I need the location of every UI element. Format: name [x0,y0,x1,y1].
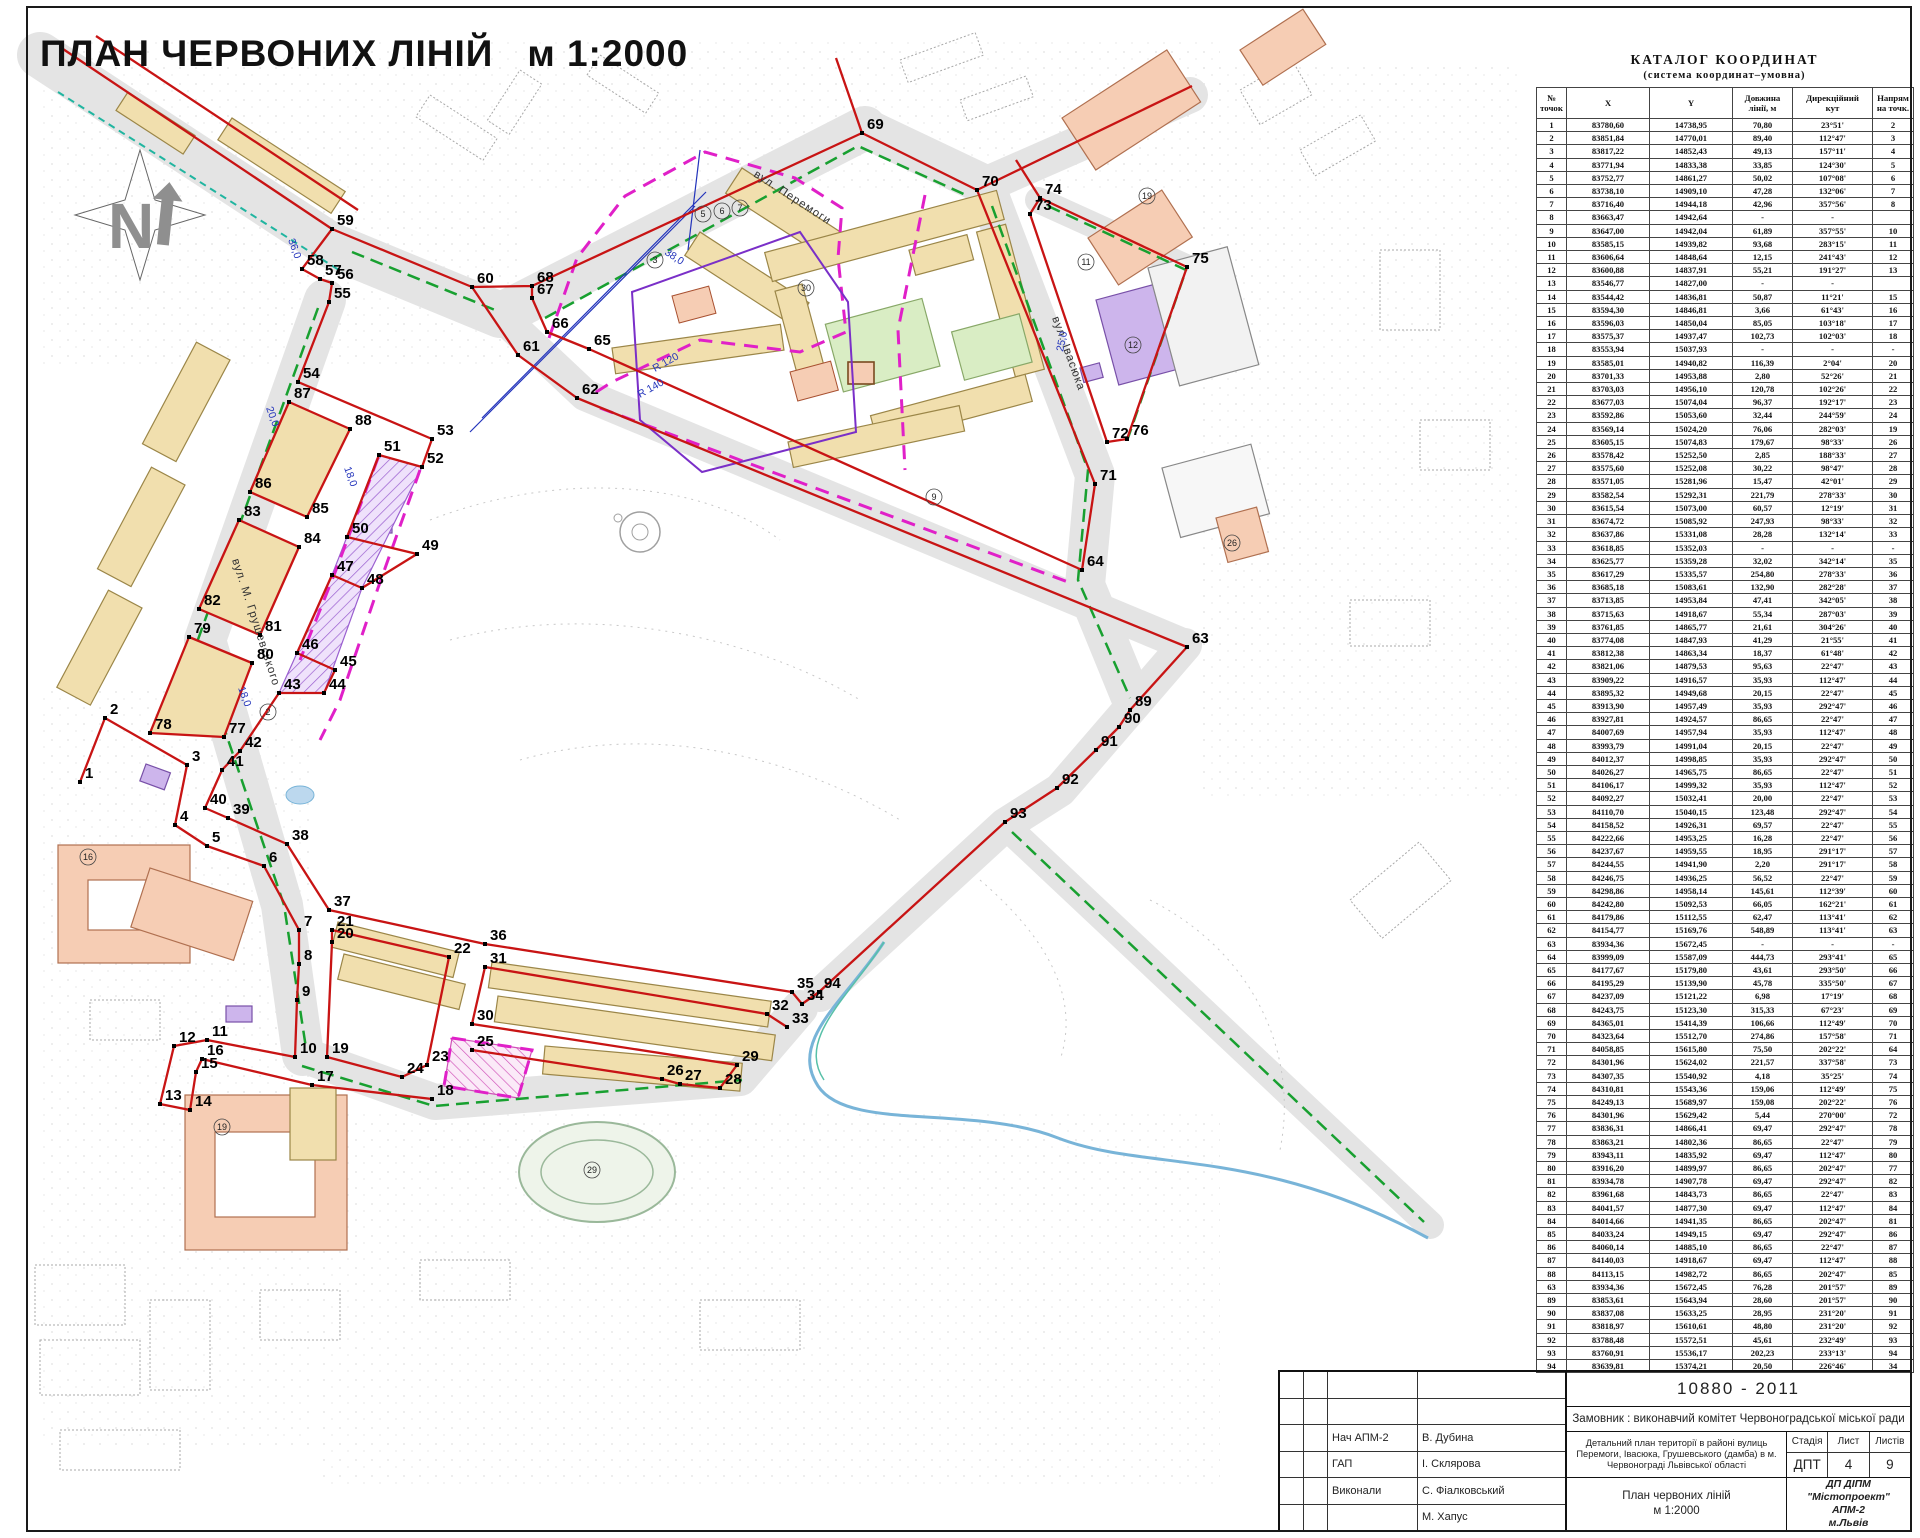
svg-text:55: 55 [334,285,351,302]
svg-text:54: 54 [303,365,320,382]
table-row: 4984012,3714998,8535,93292°47'50 [1537,752,1914,765]
table-row: 7684301,9615629,425,44270°00'72 [1537,1109,1914,1122]
svg-text:52: 52 [427,450,444,467]
table-row: 1683596,0314850,0485,05103°18'17 [1537,317,1914,330]
svg-text:19: 19 [1142,191,1152,201]
page-title: ПЛАН ЧЕРВОНИХ ЛІНІЙм 1:2000 [40,33,688,75]
svg-text:68: 68 [537,269,554,286]
svg-text:64: 64 [1087,553,1104,570]
title-block: Нач АПМ-2В. Дубина ГАПІ. Склярова Викона… [1278,1370,1912,1532]
svg-text:59: 59 [337,212,354,229]
svg-text:18: 18 [437,1082,454,1099]
stage-table: Стадія Лист Листів ДПТ 4 9 [1787,1432,1910,1477]
building-number: 11 [1078,254,1094,270]
table-row: 6684195,2915139,9045,78335°50'67 [1537,977,1914,990]
svg-text:28: 28 [725,1071,742,1088]
catalog-title: КАТАЛОГ КООРДИНАТ [1536,52,1913,68]
table-row: 1483544,4214836,8150,8711°21'15 [1537,290,1914,303]
table-row: 6984365,0115414,39106,66112°49'70 [1537,1016,1914,1029]
svg-text:83: 83 [244,503,261,520]
svg-text:25: 25 [477,1033,494,1050]
svg-text:82: 82 [204,592,221,609]
organization-city: м.Львів [1829,1517,1869,1530]
svg-text:32: 32 [772,997,789,1014]
svg-text:87: 87 [294,385,311,402]
catalog-table: № точокXYДовжина лінії, мДирекційний кут… [1536,87,1914,1373]
table-row: 3683685,1815083,61132,90282°28'37 [1537,581,1914,594]
table-row: 1183606,6414848,6412,15241°43'12 [1537,251,1914,264]
table-row: 2683578,4215252,502,85188°33'27 [1537,449,1914,462]
table-row: 983647,0014942,0461,89357°55'10 [1537,224,1914,237]
table-row: 7883863,2114802,3686,6522°47'79 [1537,1135,1914,1148]
survey-point: 36 [483,927,507,946]
table-row: 5484158,5214926,3169,5722°47'55 [1537,818,1914,831]
survey-point: 84 [297,530,321,549]
svg-text:65: 65 [594,332,611,349]
table-row: 1083585,1514939,8293,68283°15'11 [1537,237,1914,250]
svg-text:19: 19 [217,1122,227,1132]
table-row: 6884243,7515123,30315,3367°23'69 [1537,1003,1914,1016]
svg-text:70: 70 [982,173,999,190]
table-row: 5584222,6614953,2516,2822°47'56 [1537,831,1914,844]
table-row: 8384041,5714877,3069,47112°47'84 [1537,1201,1914,1214]
svg-text:26: 26 [667,1062,684,1079]
svg-text:5: 5 [700,209,705,219]
svg-text:6: 6 [269,849,277,866]
svg-text:44: 44 [329,676,346,693]
table-row: 8884113,1514982,7286,65202°47'85 [1537,1267,1914,1280]
table-row: 7084323,6415512,70274,86157°58'71 [1537,1030,1914,1043]
survey-point: 65 [587,332,611,351]
svg-text:37: 37 [334,893,351,910]
table-row: 9383760,9115536,17202,23233°13'94 [1537,1346,1914,1359]
svg-text:46: 46 [302,636,319,653]
table-row: 6184179,8615112,5562,47113°41'62 [1537,911,1914,924]
table-row: 4083774,0814847,9341,2921°55'41 [1537,633,1914,646]
signature-role [1328,1505,1418,1531]
table-row: 5084026,2714965,7586,6522°47'51 [1537,765,1914,778]
svg-text:38: 38 [292,827,309,844]
signature-role: Нач АПМ-2 [1328,1425,1418,1451]
svg-text:43: 43 [284,676,301,693]
table-row: 1883553,9415037,93--- [1537,343,1914,356]
svg-text:22: 22 [454,940,471,957]
svg-text:51: 51 [384,438,401,455]
table-row: 9283788,4815572,5145,61232°49'93 [1537,1333,1914,1346]
svg-text:21: 21 [337,913,354,930]
table-row: 4883993,7914991,0420,1522°47'49 [1537,739,1914,752]
svg-text:63: 63 [1192,630,1209,647]
table-row: 183780,6014738,9570,8023°51'2 [1537,119,1914,132]
table-row: 1283600,8814837,9155,21191°27'13 [1537,264,1914,277]
table-row: 3983761,8514865,7721,61304°26'40 [1537,620,1914,633]
svg-text:16: 16 [207,1042,224,1059]
table-row: 8183934,7814907,7869,47292°47'82 [1537,1175,1914,1188]
svg-text:41: 41 [227,753,244,770]
survey-point: 31 [483,950,507,969]
sheets-label: Листів [1870,1432,1910,1452]
svg-text:69: 69 [867,116,884,133]
svg-text:90: 90 [1124,710,1141,727]
object-description: Детальний план території в районі вулиць… [1567,1432,1787,1477]
stage-label: Стадія [1787,1432,1828,1452]
table-row: 6383934,3615672,45--- [1537,937,1914,950]
organization-name: ДП ДІПМ "Містопроект" [1787,1478,1910,1504]
table-row: 2483569,1415024,2076,06282°03'19 [1537,422,1914,435]
svg-text:75: 75 [1192,250,1209,267]
sheet-value: 4 [1828,1453,1869,1477]
table-row: 5784244,5514941,902,20291°17'58 [1537,858,1914,871]
svg-text:53: 53 [437,422,454,439]
table-row: 5984298,8614958,14145,61112°39'60 [1537,884,1914,897]
svg-text:74: 74 [1045,181,1062,198]
table-row: 8784140,0314918,6769,47112°47'88 [1537,1254,1914,1267]
table-row: 3583617,2915335,57254,80278°33'36 [1537,567,1914,580]
svg-text:77: 77 [229,720,246,737]
table-row: 483771,9414833,3833,85124°30'5 [1537,158,1914,171]
catalog-column-header: X [1567,88,1650,119]
table-row: 6383934,3615672,4576,28201°57'89 [1537,1280,1914,1293]
table-row: 2883571,0515281,9615,4742°01'29 [1537,475,1914,488]
svg-text:31: 31 [490,950,507,967]
svg-text:12: 12 [1128,340,1138,350]
table-row: 9183818,9715610,6148,80231°20'92 [1537,1320,1914,1333]
catalog-subtitle: (система координат–умовна) [1536,70,1913,81]
table-row: 1383546,7714827,00-- [1537,277,1914,290]
playground-shed [672,286,716,323]
svg-text:2: 2 [110,701,118,718]
svg-text:62: 62 [582,381,599,398]
table-row: 5884246,7514936,2556,5222°47'59 [1537,871,1914,884]
svg-text:57: 57 [325,262,342,279]
document-title-cell: План червоних ліній м 1:2000 [1567,1478,1787,1530]
svg-text:80: 80 [257,646,274,663]
svg-text:1: 1 [85,765,93,782]
svg-text:66: 66 [552,315,569,332]
catalog-column-header: Дирекційний кут [1793,88,1873,119]
table-row: 6084242,8015092,5366,05162°21'61 [1537,897,1914,910]
table-row: 9083837,0815633,2528,95231°20'91 [1537,1307,1914,1320]
svg-text:8: 8 [304,947,312,964]
svg-text:13: 13 [165,1087,182,1104]
svg-text:86: 86 [255,475,272,492]
survey-point: 50 [345,520,369,539]
table-row: 5284092,2715032,4120,0022°47'53 [1537,792,1914,805]
svg-text:76: 76 [1132,422,1149,439]
table-row: 5384110,7015040,15123,48292°47'54 [1537,805,1914,818]
table-row: 8283961,6814843,7386,6522°47'83 [1537,1188,1914,1201]
table-row: 6784237,0915121,226,9817°19'68 [1537,990,1914,1003]
table-row: 8484014,6614941,3586,65202°47'81 [1537,1214,1914,1227]
signature-name: І. Склярова [1418,1452,1565,1478]
project-number: 10880 - 2011 [1567,1372,1910,1407]
coordinate-catalog: КАТАЛОГ КООРДИНАТ (система координат–умо… [1536,52,1913,1373]
plan-sheet: N вул. Перемогивул. Івасюкавул. М. Груше… [0,0,1920,1538]
catalog-column-header: Y [1650,88,1733,119]
svg-text:61: 61 [523,338,540,355]
svg-text:73: 73 [1035,197,1052,214]
signature-name: В. Дубина [1418,1425,1565,1451]
stage-value: ДПТ [1787,1453,1828,1477]
survey-point: 21 [330,913,354,932]
svg-text:16: 16 [83,852,93,862]
svg-text:39: 39 [233,801,250,818]
signature-role: ГАП [1328,1452,1418,1478]
survey-point: 66 [545,315,569,334]
document-scale: м 1:2000 [1653,1504,1699,1519]
table-row: 8083916,2014899,9786,65202°47'77 [1537,1162,1914,1175]
svg-text:71: 71 [1100,467,1117,484]
table-row: 7783836,3114866,4169,47292°47'78 [1537,1122,1914,1135]
survey-point: 47 [330,558,354,577]
table-row: 4183812,3814863,3418,3761°48'42 [1537,647,1914,660]
survey-point: 72 [1105,425,1129,444]
svg-text:10: 10 [300,1040,317,1057]
svg-text:36: 36 [490,927,507,944]
svg-text:7: 7 [304,913,312,930]
survey-point: 80 [250,646,274,665]
table-row: 3283637,8615331,0828,28132°14'33 [1537,528,1914,541]
svg-text:92: 92 [1062,771,1079,788]
svg-text:33: 33 [792,1010,809,1027]
svg-text:85: 85 [312,500,329,517]
svg-text:9: 9 [302,983,310,1000]
table-row: 1583594,3014846,813,6661°43'16 [1537,303,1914,316]
svg-text:42: 42 [245,734,262,751]
dimension-label: 18,0 [341,465,359,488]
svg-text:81: 81 [265,618,282,635]
catalog-column-header: № точок [1537,88,1567,119]
organization-dept: АПМ-2 [1832,1504,1865,1517]
table-row: 3783713,8514953,8447,41342°05'38 [1537,594,1914,607]
table-row: 283851,8414770,0189,40112°47'3 [1537,132,1914,145]
svg-text:47: 47 [337,558,354,575]
svg-text:26: 26 [1227,538,1237,548]
svg-text:23: 23 [432,1048,449,1065]
svg-text:58: 58 [307,252,324,269]
svg-text:12: 12 [179,1029,196,1046]
svg-text:60: 60 [477,270,494,287]
svg-text:94: 94 [824,975,841,992]
svg-text:78: 78 [155,716,172,733]
svg-text:88: 88 [355,412,372,429]
table-row: 3083615,5415073,0060,5712°19'31 [1537,501,1914,514]
signature-name: С. Фіалковський [1418,1478,1565,1504]
table-row: 7484310,8115543,36159,06112°49'75 [1537,1082,1914,1095]
table-row: 2783575,6015252,0830,2298°47'28 [1537,462,1914,475]
table-row: 7184058,8515615,8075,50202°22'64 [1537,1043,1914,1056]
table-row: 4283821,0614879,5395,6322°47'43 [1537,660,1914,673]
survey-point: 46 [295,636,319,655]
table-row: 2983582,5415292,31221,79278°33'30 [1537,488,1914,501]
svg-text:89: 89 [1135,693,1152,710]
document-title: План червоних ліній [1622,1489,1730,1504]
table-row: 4383909,2214916,5735,93112°47'44 [1537,673,1914,686]
table-row: 7983943,1114835,9269,47112°47'80 [1537,1148,1914,1161]
table-row: 4784007,6914957,9435,93112°47'48 [1537,726,1914,739]
table-row: 1783575,3714937,47102,73102°03'18 [1537,330,1914,343]
table-row: 3383618,8515352,03--- [1537,541,1914,554]
svg-text:2: 2 [265,707,270,717]
survey-point: 88 [348,412,372,431]
svg-text:29: 29 [587,1165,597,1175]
survey-point: 37 [327,893,351,912]
table-row: 6584177,6715179,8043,61293°50'66 [1537,964,1914,977]
svg-text:11: 11 [1081,257,1090,267]
table-row: 4483895,3214949,6820,1522°47'45 [1537,686,1914,699]
svg-text:9: 9 [931,492,936,502]
organization-cell: ДП ДІПМ "Містопроект" АПМ-2 м.Львів [1787,1478,1910,1530]
svg-text:91: 91 [1101,733,1118,750]
table-row: 1983585,0114940,82116,392°04'20 [1537,356,1914,369]
svg-text:14: 14 [195,1093,212,1110]
table-row: 7584249,1315689,97159,08202°22'76 [1537,1096,1914,1109]
catalog-column-header: Напрям на точк. [1873,88,1914,119]
table-row: 2083701,3314953,882,8052°26'21 [1537,369,1914,382]
table-row: 8584033,2414949,1569,47292°47'86 [1537,1228,1914,1241]
title-scale: м 1:2000 [527,33,688,74]
catalog-column-header: Довжина лінії, м [1733,88,1793,119]
client-line: Замовник : виконавчий комітет Червоногра… [1567,1407,1910,1431]
signature-role: Виконали [1328,1478,1418,1504]
svg-text:45: 45 [340,653,357,670]
table-row: 2183703,0314956,10120,78102°26'22 [1537,383,1914,396]
svg-text:79: 79 [194,620,211,637]
table-row: 2583605,1515074,83179,6798°33'26 [1537,435,1914,448]
dimension-label: R 140 [636,376,666,400]
signature-name: М. Хапус [1418,1505,1565,1531]
svg-text:17: 17 [317,1068,334,1085]
svg-text:7: 7 [737,203,742,213]
survey-point: 49 [415,537,439,556]
table-row: 4683927,8114924,5786,6522°47'47 [1537,713,1914,726]
table-row: 6483999,0915587,09444,73293°41'65 [1537,950,1914,963]
svg-text:11: 11 [212,1023,228,1040]
table-row: 3183674,7215085,92247,9398°33'32 [1537,515,1914,528]
svg-text:4: 4 [180,808,189,825]
svg-text:50: 50 [352,520,369,537]
table-row: 5684237,6714959,5518,95291°17'57 [1537,845,1914,858]
table-row: 7384307,3515540,924,1835°25'74 [1537,1069,1914,1082]
svg-text:93: 93 [1010,805,1027,822]
table-row: 8684060,1414885,1086,6522°47'87 [1537,1241,1914,1254]
title-text: ПЛАН ЧЕРВОНИХ ЛІНІЙ [40,33,493,74]
svg-text:84: 84 [304,530,321,547]
table-row: 383817,2214852,4349,13157°11'4 [1537,145,1914,158]
signatures-block: Нач АПМ-2В. Дубина ГАПІ. Склярова Викона… [1280,1372,1567,1530]
table-row: 783716,4014944,1842,96357°56'8 [1537,198,1914,211]
svg-text:30: 30 [477,1007,494,1024]
svg-text:35: 35 [797,975,814,992]
sheet-label: Лист [1828,1432,1869,1452]
svg-text:5: 5 [212,829,220,846]
table-row: 4583913,9014957,4935,93292°47'46 [1537,699,1914,712]
table-row: 683738,1014909,1047,28132°06'7 [1537,185,1914,198]
fountain [614,512,660,552]
survey-point: 53 [430,422,454,441]
table-row: 2383592,8615053,6032,44244°59'24 [1537,409,1914,422]
table-row: 6284154,7715169,76548,89113°41'63 [1537,924,1914,937]
sheets-value: 9 [1870,1453,1910,1477]
table-row: 7284301,9615624,02221,57337°58'73 [1537,1056,1914,1069]
svg-text:30: 30 [801,283,811,293]
svg-text:24: 24 [407,1060,424,1077]
svg-text:6: 6 [719,206,724,216]
table-row: 3483625,7715359,2832,02342°14'35 [1537,554,1914,567]
catalog-header-row: № точокXYДовжина лінії, мДирекційний кут… [1537,88,1914,119]
svg-text:19: 19 [332,1040,349,1057]
survey-point: 51 [377,438,401,457]
building-number: 30 [798,280,814,296]
table-row: 5184106,1714999,3235,93112°47'52 [1537,779,1914,792]
survey-point: 24 [400,1060,424,1079]
svg-text:48: 48 [367,571,384,588]
table-row: 2283677,0315074,0496,37192°17'23 [1537,396,1914,409]
table-row: 583752,7714861,2750,02107°08'6 [1537,171,1914,184]
table-row: 3883715,6314918,6755,34287°03'39 [1537,607,1914,620]
svg-text:27: 27 [685,1067,702,1084]
svg-text:3: 3 [652,255,657,265]
dimension-label: 38,0 [662,246,686,267]
north-letter: N [108,190,154,262]
svg-text:3: 3 [192,748,200,765]
table-row: 8983853,6115643,9428,60201°57'90 [1537,1294,1914,1307]
table-row: 883663,4714942,64-- [1537,211,1914,224]
survey-point: 35 [790,975,814,994]
svg-text:40: 40 [210,791,227,808]
svg-text:29: 29 [742,1048,759,1065]
svg-text:49: 49 [422,537,439,554]
